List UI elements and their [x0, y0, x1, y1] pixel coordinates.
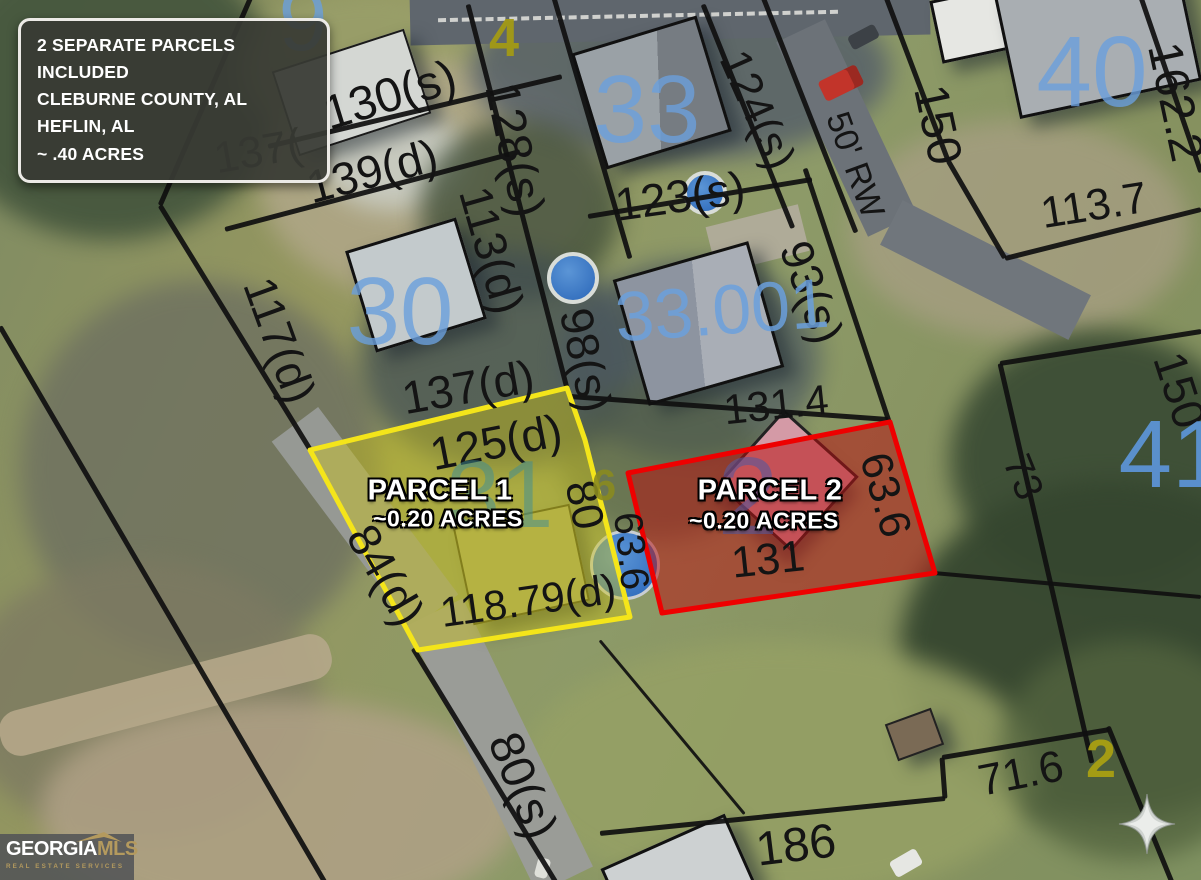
info-line-4: ~ .40 ACRES	[37, 141, 311, 168]
parcel-1-acres: ~0.20 ACRES	[373, 508, 523, 531]
lot-number: 2	[1086, 732, 1116, 786]
parcel-2-label: PARCEL 2	[698, 477, 843, 506]
logo-tagline: REAL ESTATE SERVICES	[6, 863, 130, 870]
lot-number: 33.001	[613, 268, 831, 353]
measurement-label: 118.79(d)	[438, 568, 619, 634]
info-line-1: 2 SEPARATE PARCELS INCLUDED	[37, 32, 311, 86]
parcel-1-label: PARCEL 1	[368, 477, 513, 506]
measurement-label: 113.7	[1038, 176, 1150, 236]
parcel-map: 130(s)139(d)137(128(s)113(d)123(s)124(s)…	[0, 0, 1201, 880]
measurement-label: 186	[753, 817, 838, 874]
lot-number: 33	[594, 62, 701, 158]
measurement-label: 98(s)	[553, 304, 620, 416]
measurement-label: 73	[996, 449, 1050, 505]
measurement-label: 117(d)	[236, 271, 324, 408]
parcel-2-acres: ~0.20 ACRES	[689, 510, 839, 533]
measurement-label: 123(s)	[612, 164, 748, 228]
measurement-label: 162.2	[1139, 38, 1201, 165]
georgia-mls-logo: GEORGIAMLS REAL ESTATE SERVICES	[0, 834, 134, 880]
measurement-label: 84(d)	[339, 517, 433, 633]
measurement-label: 50' RW	[820, 108, 890, 223]
measurement-label: 63.6	[852, 448, 918, 542]
lot-number: 30	[347, 264, 454, 360]
lot-number: 41	[1119, 407, 1201, 503]
measurement-label: 150	[905, 81, 969, 169]
measurement-label: 124(s)	[712, 44, 803, 176]
measurement-label: 130(s)	[318, 53, 462, 139]
info-box: 2 SEPARATE PARCELS INCLUDED CLEBURNE COU…	[18, 18, 330, 183]
info-line-3: HEFLIN, AL	[37, 113, 311, 140]
lot-number: 6	[592, 464, 616, 508]
measurement-label: 63.6	[607, 510, 655, 592]
lot-number: 4	[489, 11, 519, 65]
measurement-label: 80(s)	[479, 726, 564, 845]
measurement-label: 131.4	[722, 379, 831, 432]
roof-swoosh-icon	[74, 830, 124, 844]
info-line-2: CLEBURNE COUNTY, AL	[37, 86, 311, 113]
measurement-label: 71.6	[975, 744, 1067, 804]
lot-number: 40	[1036, 22, 1147, 122]
